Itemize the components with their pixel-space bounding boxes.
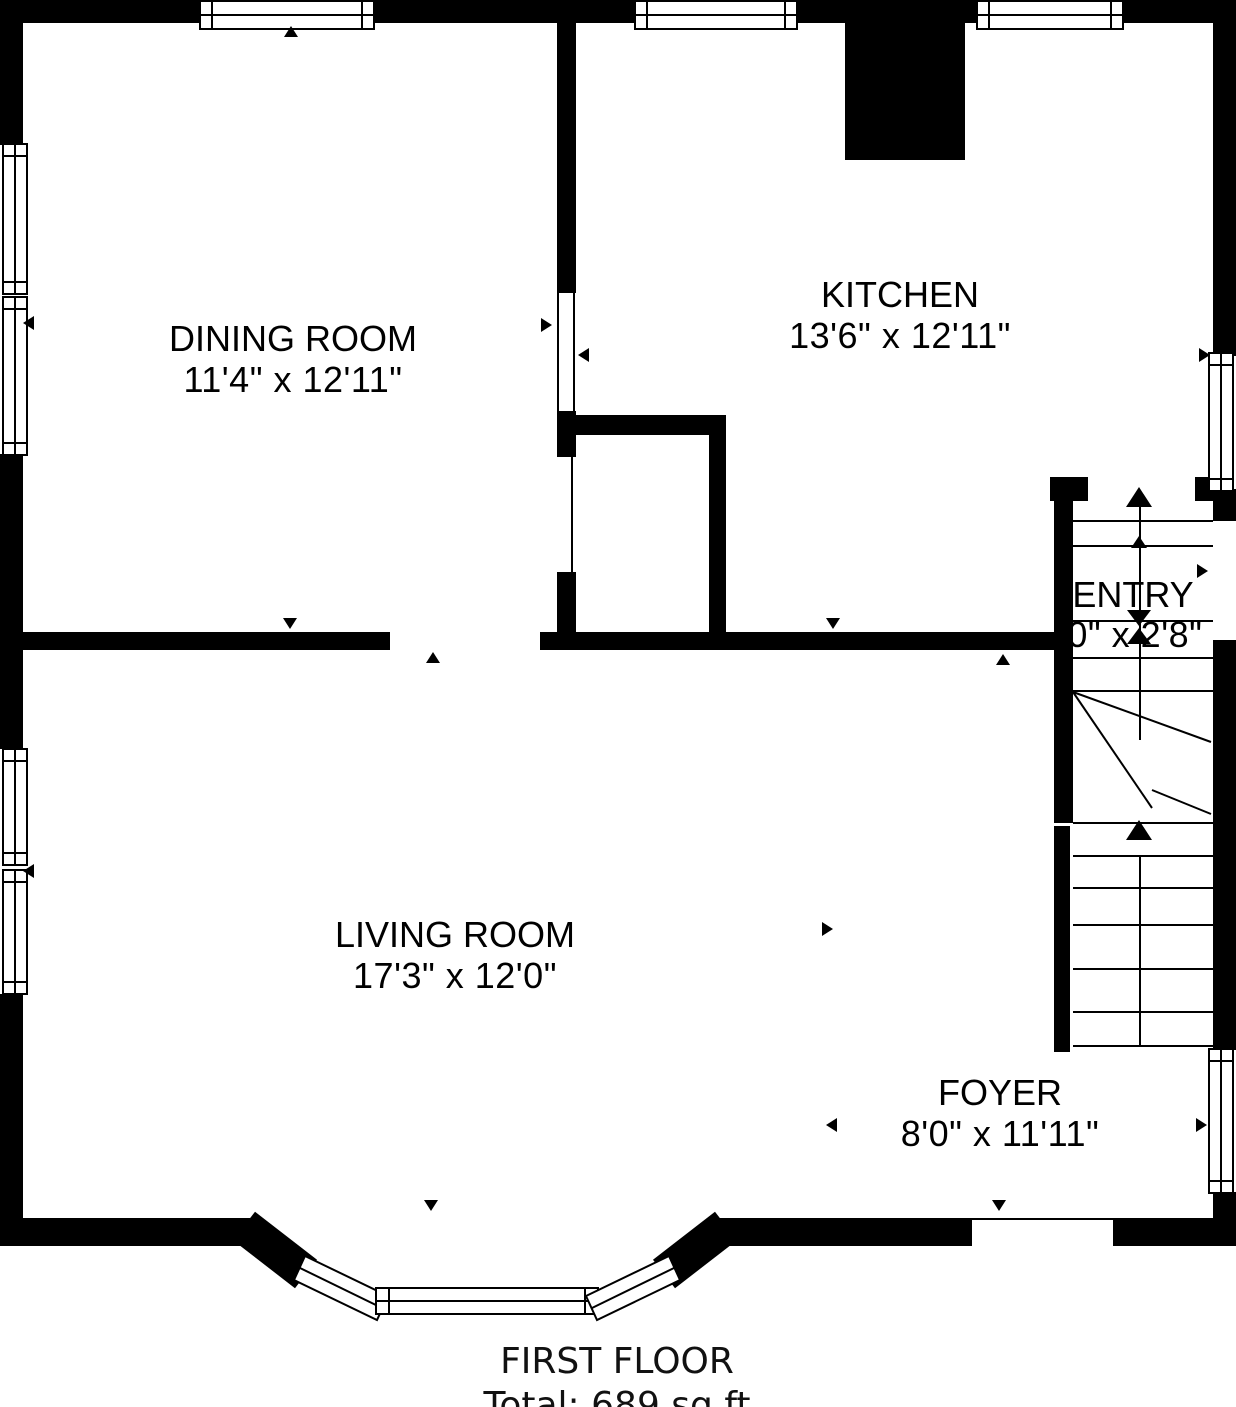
- wall-bottom-left: [0, 1218, 250, 1246]
- stair-tread: [1073, 924, 1213, 926]
- window-left-living-upper: [2, 748, 28, 866]
- marker-divider-down-icon: [283, 618, 297, 629]
- bay-window-and-stair-winders: [0, 0, 1236, 1407]
- wall-left-upper: [0, 0, 23, 145]
- stair-tread: [1073, 690, 1213, 692]
- marker-kitchen-wall-down-icon: [826, 618, 840, 629]
- bay-wall-wedge-left: [244, 1226, 306, 1274]
- stairs-up-arrow-icon: [1126, 487, 1152, 507]
- bay-window-center: [376, 1288, 598, 1314]
- floor-plan: DINING ROOM 11'4" x 12'11" KITCHEN 13'6"…: [0, 0, 1236, 1407]
- marker-doorway-up-icon: [426, 652, 440, 663]
- marker-entry-right-icon: [1197, 564, 1208, 578]
- wall-bottom-right: [1113, 1218, 1236, 1246]
- wall-left-middle: [0, 454, 23, 749]
- window-left-living-lower: [2, 869, 28, 995]
- marker-living-bottom-icon: [424, 1200, 438, 1211]
- wall-bottom-middle: [716, 1218, 972, 1246]
- marker-dining-left-icon: [23, 316, 34, 330]
- stair-tread: [1073, 1011, 1213, 1013]
- stair-tread: [1073, 1045, 1213, 1047]
- marker-kitchen-left-icon: [578, 348, 589, 362]
- chimney: [845, 23, 965, 160]
- wall-left-lower: [0, 994, 23, 1246]
- marker-foyer-top-up-icon: [996, 654, 1010, 665]
- window-left-dining-upper: [2, 143, 28, 295]
- marker-dining-door-left-icon: [560, 262, 571, 276]
- wall-dining-kitchen-mid: [557, 411, 576, 457]
- window-top-kitchen-left: [634, 0, 798, 30]
- bay-window-right: [586, 1256, 680, 1320]
- marker-entry-left-icon: [1057, 564, 1068, 578]
- marker-living-right-icon: [822, 922, 833, 936]
- stair-tread: [1073, 968, 1213, 970]
- marker-kitchen-right-icon: [1199, 348, 1210, 362]
- window-right-foyer: [1208, 1048, 1234, 1194]
- wall-entry-top-stub-left: [1050, 477, 1088, 501]
- stair-winder-line: [1073, 692, 1211, 742]
- marker-dining-door-right-icon: [541, 318, 552, 332]
- stair-tread: [1073, 657, 1213, 659]
- stair-tread: [1073, 520, 1213, 522]
- wall-stair-left-upper: [1054, 477, 1073, 823]
- closet-wall-top: [576, 415, 726, 435]
- marker-living-left-icon: [23, 864, 34, 878]
- stair-center-line-lower: [1139, 857, 1141, 1047]
- stairs-up-arrowhead-icon: [1131, 536, 1147, 548]
- wall-right-middle: [1213, 640, 1236, 1050]
- marker-dining-top-icon: [284, 26, 298, 37]
- stairs-lower-up-arrow-icon: [1126, 820, 1152, 840]
- wall-right-stub: [1213, 489, 1236, 521]
- stair-tread: [1073, 855, 1213, 857]
- wall-right-upper: [1213, 0, 1236, 356]
- stair-tread: [1073, 887, 1213, 889]
- window-right-kitchen: [1208, 352, 1234, 492]
- wall-dining-living-left: [23, 632, 390, 650]
- marker-foyer-left-icon: [826, 1118, 837, 1132]
- window-top-kitchen-right: [976, 0, 1124, 30]
- wall-stair-left-lower: [1054, 826, 1070, 1052]
- marker-front-door-icon: [992, 1200, 1006, 1211]
- bay-window-left: [294, 1256, 388, 1320]
- stair-winder-line: [1152, 790, 1211, 814]
- stairs-break-arrow-up-icon: [1127, 628, 1151, 644]
- marker-foyer-right-icon: [1196, 1118, 1207, 1132]
- wall-dining-kitchen-upper: [557, 23, 576, 293]
- stairs-break-arrow-down-icon: [1127, 610, 1151, 626]
- wall-kitchen-foyer: [540, 632, 1071, 650]
- closet-wall-right: [709, 415, 726, 650]
